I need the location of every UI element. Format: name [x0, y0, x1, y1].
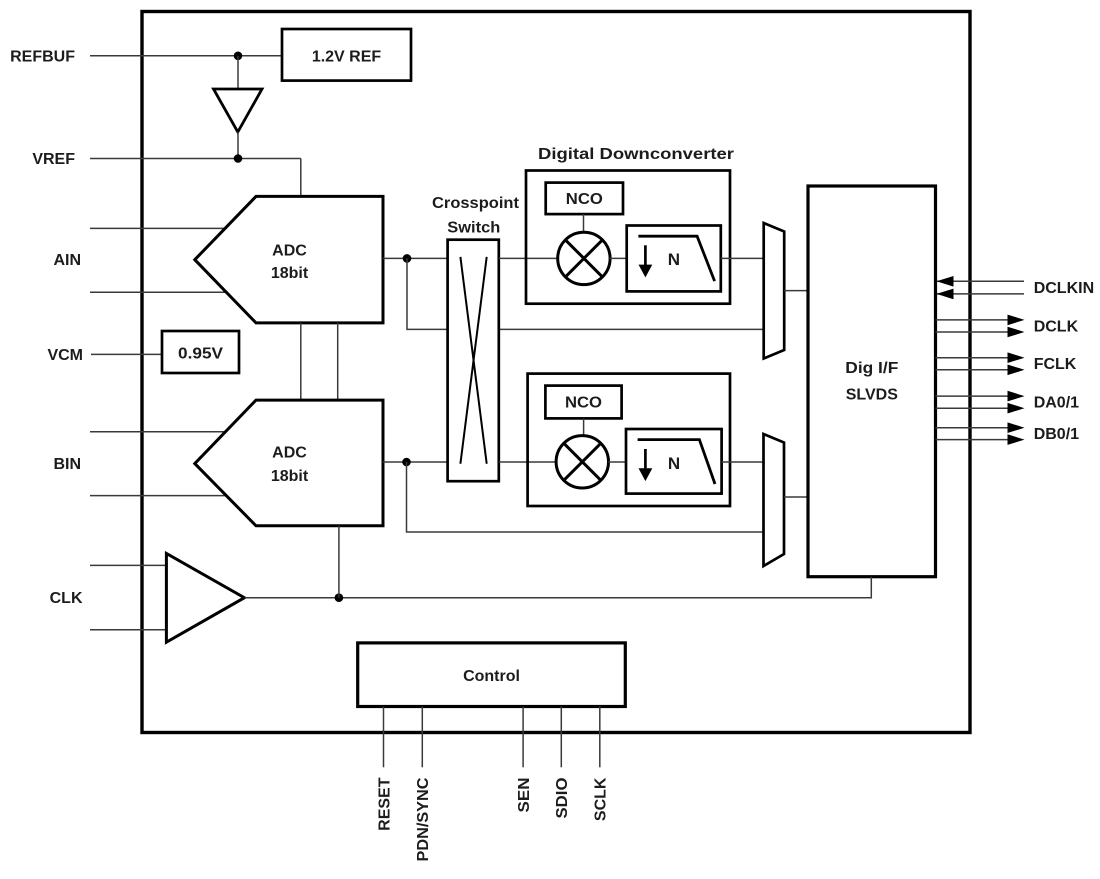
- svg-text:FCLK: FCLK: [1034, 356, 1077, 373]
- svg-text:0.95V: 0.95V: [178, 345, 223, 362]
- svg-text:ADC: ADC: [272, 242, 307, 259]
- svg-text:SLVDS: SLVDS: [846, 387, 898, 404]
- svg-text:Dig I/F: Dig I/F: [845, 360, 898, 377]
- svg-text:NCO: NCO: [566, 191, 603, 208]
- svg-text:DCLKIN: DCLKIN: [1034, 280, 1094, 297]
- svg-text:VREF: VREF: [32, 151, 75, 168]
- svg-text:ADC: ADC: [272, 445, 307, 462]
- svg-text:1.2V REF: 1.2V REF: [312, 48, 382, 65]
- svg-text:18bit: 18bit: [271, 468, 309, 485]
- svg-text:Digital Downconverter: Digital Downconverter: [538, 146, 734, 163]
- svg-text:N: N: [668, 250, 680, 269]
- svg-text:RESET: RESET: [376, 777, 393, 831]
- svg-text:BIN: BIN: [53, 456, 81, 473]
- svg-text:N: N: [668, 454, 680, 473]
- svg-text:Switch: Switch: [447, 219, 500, 236]
- svg-text:SEN: SEN: [516, 778, 533, 813]
- svg-text:NCO: NCO: [565, 395, 602, 412]
- svg-text:DB0/1: DB0/1: [1034, 426, 1079, 443]
- svg-text:18bit: 18bit: [271, 265, 309, 282]
- svg-text:DA0/1: DA0/1: [1034, 395, 1079, 412]
- svg-text:REFBUF: REFBUF: [10, 48, 75, 65]
- svg-text:SCLK: SCLK: [593, 777, 610, 821]
- svg-text:AIN: AIN: [53, 252, 81, 269]
- svg-text:CLK: CLK: [50, 590, 83, 607]
- svg-text:VCM: VCM: [47, 347, 83, 364]
- svg-text:PDN/SYNC: PDN/SYNC: [415, 777, 432, 861]
- svg-text:DCLK: DCLK: [1034, 319, 1079, 336]
- svg-text:SDIO: SDIO: [554, 778, 571, 819]
- svg-text:Crosspoint: Crosspoint: [432, 195, 520, 212]
- svg-text:Control: Control: [463, 668, 520, 685]
